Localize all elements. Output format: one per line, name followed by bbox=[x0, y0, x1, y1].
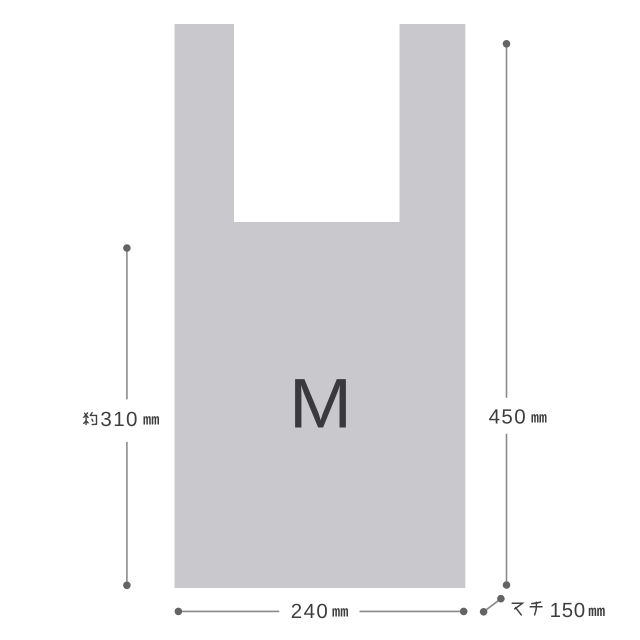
svg-text:mm: mm bbox=[332, 604, 349, 622]
svg-text:450: 450 bbox=[489, 406, 527, 429]
svg-text:240: 240 bbox=[291, 600, 329, 623]
svg-text:mm: mm bbox=[531, 409, 547, 427]
svg-text:M: M bbox=[289, 363, 352, 442]
svg-text:mm: mm bbox=[143, 412, 160, 430]
svg-text:310: 310 bbox=[100, 408, 138, 431]
svg-text:mm: mm bbox=[588, 603, 605, 621]
svg-text:150: 150 bbox=[550, 599, 586, 622]
